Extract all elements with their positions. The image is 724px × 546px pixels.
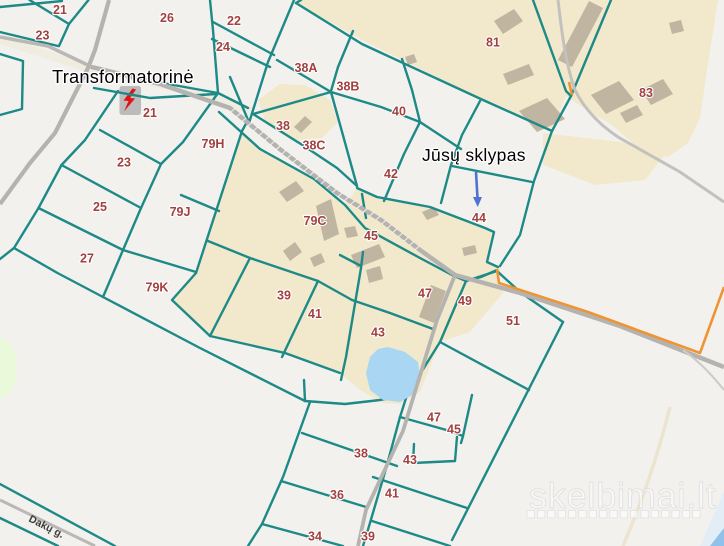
svg-text:38B: 38B — [337, 80, 360, 94]
svg-text:45: 45 — [447, 423, 461, 437]
svg-text:79C: 79C — [304, 214, 327, 228]
svg-text:25: 25 — [93, 200, 107, 214]
svg-text:27: 27 — [80, 252, 94, 266]
svg-text:38: 38 — [354, 447, 368, 461]
svg-text:43: 43 — [403, 453, 417, 467]
svg-text:44: 44 — [472, 211, 486, 225]
svg-text:40: 40 — [392, 105, 406, 119]
svg-text:81: 81 — [486, 36, 500, 50]
svg-text:36: 36 — [330, 488, 344, 502]
svg-text:39: 39 — [277, 289, 291, 303]
svg-text:38: 38 — [276, 119, 290, 133]
svg-text:51: 51 — [506, 314, 520, 328]
svg-text:79K: 79K — [146, 281, 169, 295]
svg-text:23: 23 — [117, 156, 131, 170]
svg-text:41: 41 — [308, 307, 322, 321]
svg-text:38A: 38A — [295, 61, 318, 75]
svg-text:24: 24 — [216, 40, 230, 54]
svg-text:79J: 79J — [170, 205, 191, 219]
svg-text:21: 21 — [53, 3, 67, 17]
svg-text:49: 49 — [458, 294, 472, 308]
svg-text:Jūsų sklypas: Jūsų sklypas — [422, 145, 526, 165]
svg-text:34: 34 — [308, 530, 322, 544]
svg-text:38C: 38C — [303, 139, 326, 153]
svg-text:42: 42 — [384, 167, 398, 181]
svg-text:26: 26 — [160, 11, 174, 25]
svg-text:39: 39 — [361, 530, 375, 544]
svg-text:83: 83 — [639, 86, 653, 100]
svg-text:43: 43 — [371, 326, 385, 340]
svg-text:41: 41 — [385, 487, 399, 501]
svg-text:23: 23 — [36, 29, 50, 43]
svg-text:47: 47 — [427, 411, 441, 425]
svg-text:47: 47 — [418, 287, 432, 301]
svg-text:22: 22 — [227, 14, 241, 28]
svg-text:Transformatorinė: Transformatorinė — [52, 66, 194, 87]
svg-text:79H: 79H — [202, 137, 225, 151]
svg-text:21: 21 — [143, 106, 157, 120]
svg-text:skelbimai.lt: skelbimai.lt — [529, 475, 717, 516]
svg-text:45: 45 — [364, 229, 378, 243]
